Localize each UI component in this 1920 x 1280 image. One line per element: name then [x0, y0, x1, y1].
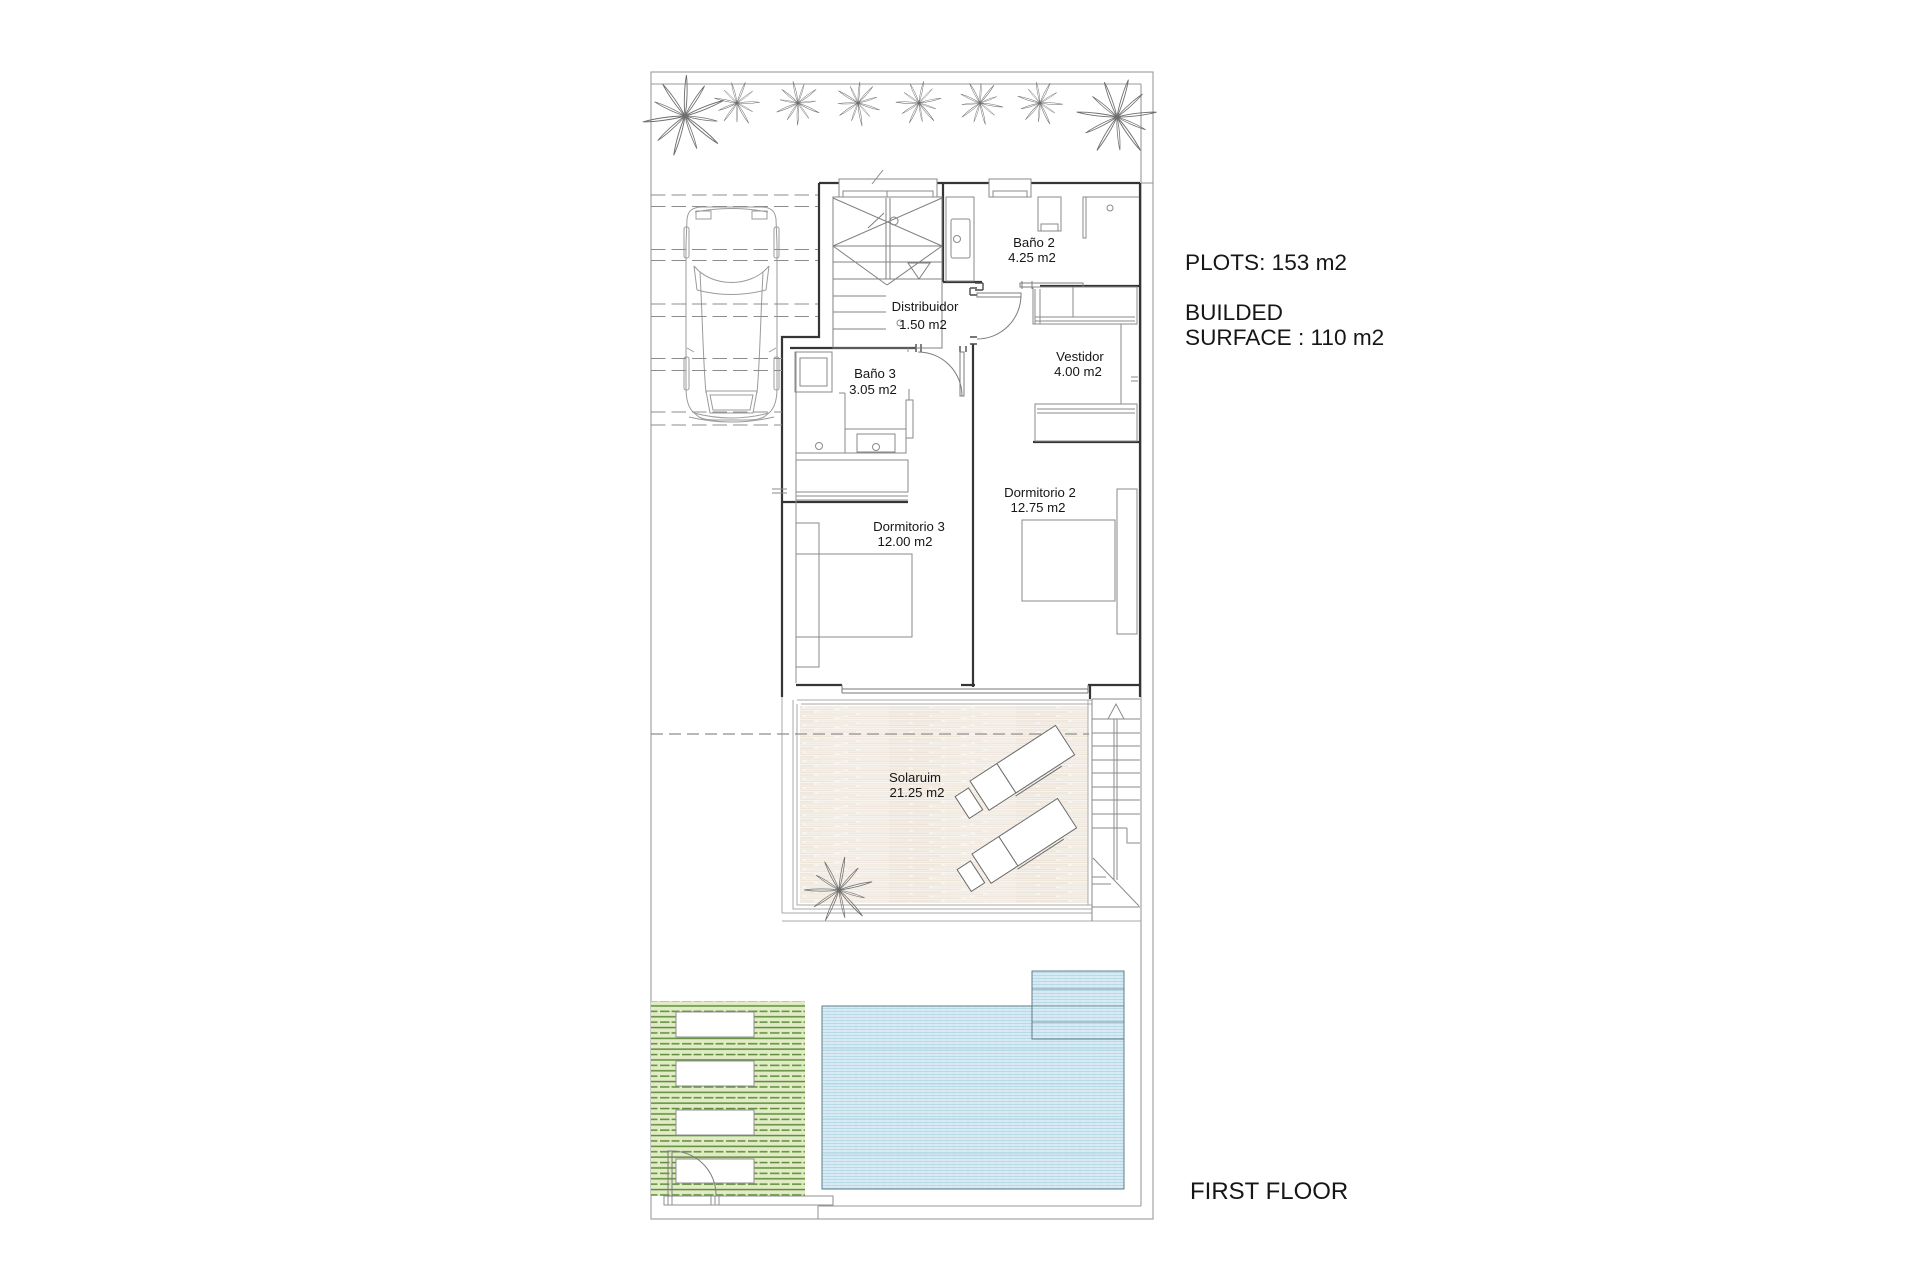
svg-text:1.50 m2: 1.50 m2: [899, 317, 947, 332]
svg-text:12.75 m2: 12.75 m2: [1011, 500, 1066, 515]
svg-text:BUILDED: BUILDED: [1185, 300, 1283, 325]
svg-text:Vestidor: Vestidor: [1056, 349, 1104, 364]
svg-text:Solaruim: Solaruim: [889, 770, 941, 785]
svg-text:4.00 m2: 4.00 m2: [1054, 364, 1102, 379]
svg-text:Dormitorio 3: Dormitorio 3: [873, 519, 945, 534]
svg-text:PLOTS: 153 m2: PLOTS: 153 m2: [1185, 250, 1347, 275]
svg-text:Baño 2: Baño 2: [1013, 235, 1055, 250]
svg-text:12.00 m2: 12.00 m2: [878, 534, 933, 549]
svg-text:FIRST FLOOR: FIRST FLOOR: [1190, 1178, 1348, 1205]
svg-text:4.25 m2: 4.25 m2: [1008, 250, 1056, 265]
svg-text:SURFACE : 110 m2: SURFACE : 110 m2: [1185, 325, 1384, 350]
svg-text:Dormitorio 2: Dormitorio 2: [1004, 485, 1076, 500]
svg-text:Baño 3: Baño 3: [854, 366, 896, 381]
svg-text:Distribuidor: Distribuidor: [892, 299, 959, 314]
svg-text:3.05 m2: 3.05 m2: [849, 382, 897, 397]
svg-text:21.25 m2: 21.25 m2: [890, 785, 945, 800]
